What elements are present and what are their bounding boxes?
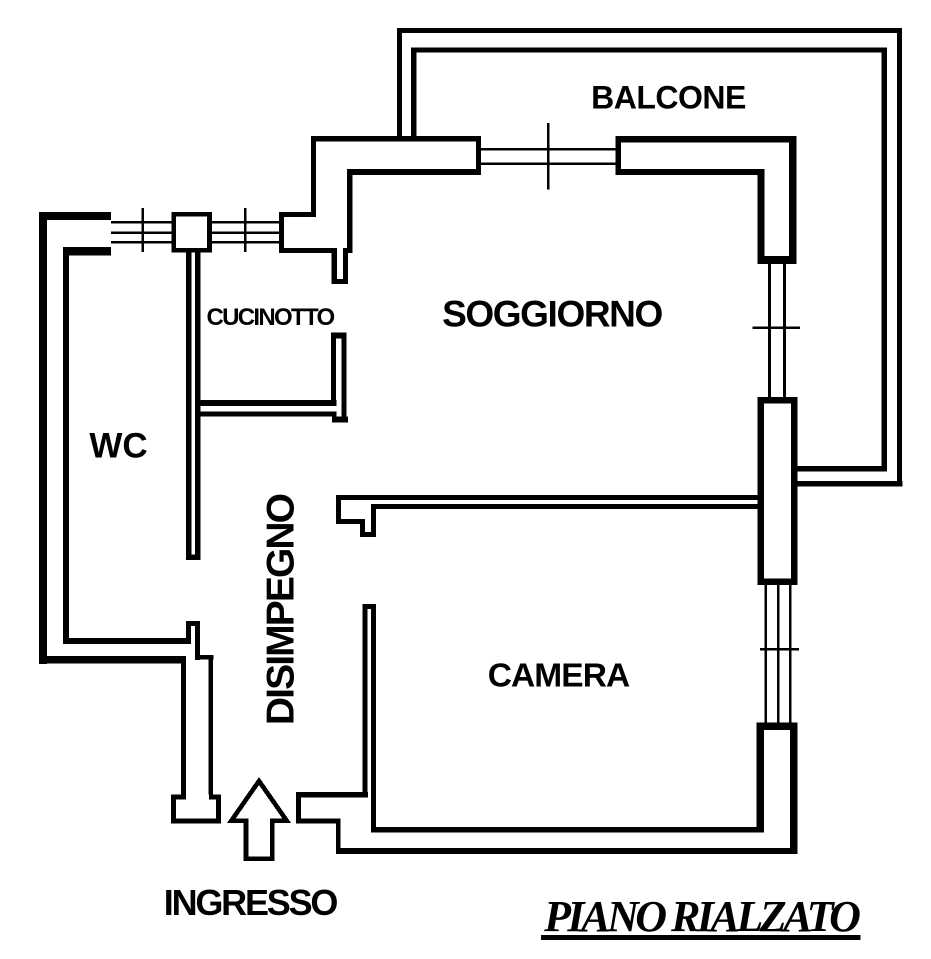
svg-text:WC: WC <box>89 427 147 466</box>
svg-text:INGRESSO: INGRESSO <box>164 882 338 923</box>
svg-text:CAMERA: CAMERA <box>488 658 630 695</box>
svg-text:BALCONE: BALCONE <box>591 80 746 116</box>
svg-text:PIANO RIALZATO: PIANO RIALZATO <box>543 892 860 941</box>
svg-text:DISIMPEGNO: DISIMPEGNO <box>259 494 302 725</box>
svg-text:CUCINOTTO: CUCINOTTO <box>207 304 335 331</box>
svg-text:SOGGIORNO: SOGGIORNO <box>442 294 662 335</box>
